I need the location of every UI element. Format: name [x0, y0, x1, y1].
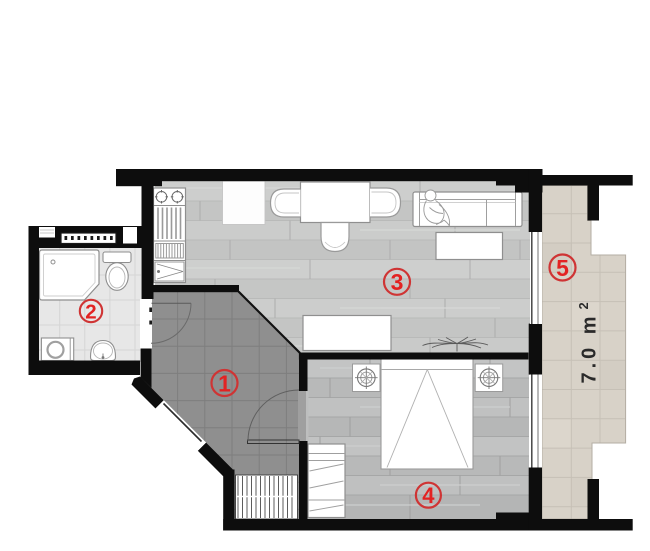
svg-text:3: 3	[391, 269, 404, 295]
svg-text:2: 2	[85, 300, 96, 323]
svg-text:5: 5	[556, 255, 569, 281]
svg-text:1: 1	[218, 370, 231, 396]
svg-text:4: 4	[422, 483, 435, 508]
